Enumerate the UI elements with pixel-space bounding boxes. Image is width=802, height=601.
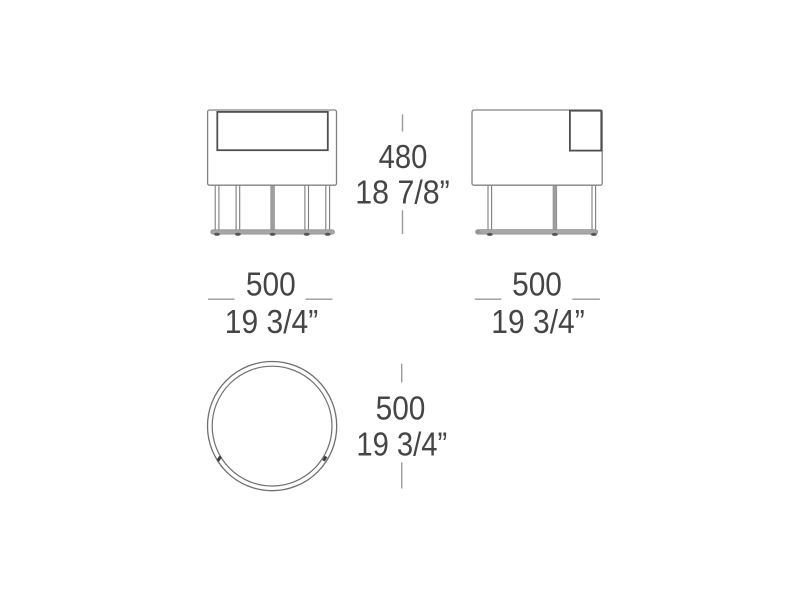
svg-text:500: 500 [512,266,562,303]
svg-text:500: 500 [376,390,426,427]
svg-text:19 3/4”: 19 3/4” [491,302,584,340]
svg-text:19 3/4”: 19 3/4” [356,426,447,463]
svg-text:19 3/4”: 19 3/4” [225,302,318,340]
svg-text:480: 480 [379,138,428,175]
svg-text:18 7/8”: 18 7/8” [355,173,449,210]
svg-text:500: 500 [246,266,296,303]
